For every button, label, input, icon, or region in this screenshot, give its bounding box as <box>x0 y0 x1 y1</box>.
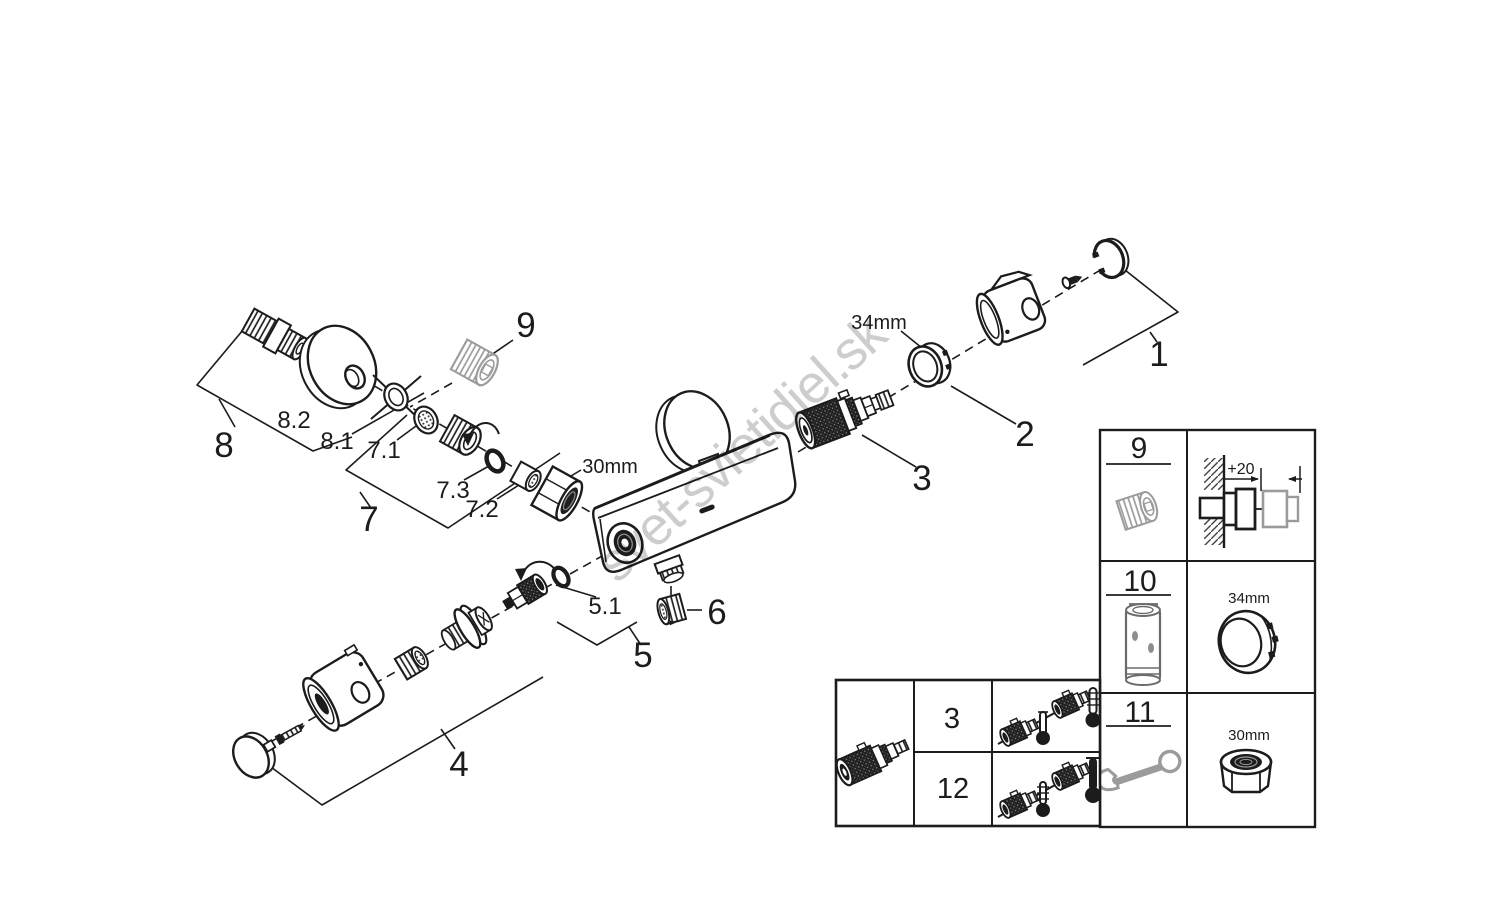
label-part-2: 2 <box>1015 415 1034 454</box>
part-8-1-seal-with-cross <box>371 375 421 420</box>
label-part-7: 7 <box>359 500 378 539</box>
service-table: 9 10 11 +20 <box>1095 430 1315 827</box>
part-7-3-threaded-connector <box>440 415 485 458</box>
table-ref-10: 10 <box>1123 565 1156 598</box>
label-part-6: 6 <box>707 593 726 632</box>
part-2-locking-ring-34mm <box>903 338 957 391</box>
part-5-1-shutoff-cartridge <box>499 572 550 615</box>
part-8-escutcheon <box>286 314 389 420</box>
part-4-volume-handle <box>295 644 388 735</box>
table-ref-11: 11 <box>1124 696 1155 729</box>
label-part-8: 8 <box>214 426 233 465</box>
label-part-5: 5 <box>633 636 652 675</box>
part-6-mousseur <box>655 594 686 628</box>
label-part-1: 1 <box>1149 335 1168 374</box>
part-7-1-filter-disc <box>410 402 443 437</box>
table-detail-34mm: 34mm <box>1228 590 1270 607</box>
label-part-9: 9 <box>516 306 535 345</box>
hex-union-nut-icon <box>1221 750 1271 792</box>
label-part-7-1: 7.1 <box>367 437 400 464</box>
bracket-part-5 <box>557 622 637 645</box>
leader-3 <box>862 435 916 467</box>
table-detail-30mm: 30mm <box>1228 727 1270 744</box>
thermometer-scale-icon-2 <box>1036 782 1050 817</box>
leader-2 <box>951 386 1016 424</box>
parts-diagram-canvas: 8 8.2 8.1 7.1 7.3 7.2 7 9 30mm 5.1 6 5 4… <box>0 0 1500 916</box>
part-5-flanged-bushing <box>433 597 499 661</box>
tick-label-8 <box>219 399 235 427</box>
variant-ref-12: 12 <box>937 773 969 805</box>
extension-sleeve-icon <box>1126 604 1160 685</box>
part-7-3-o-ring <box>483 448 507 474</box>
watermark-text: svet-svietidiel.sk <box>585 302 899 593</box>
label-part-7-2: 7.2 <box>465 496 498 523</box>
label-part-3: 3 <box>912 459 931 498</box>
cartridge-variant-table: 3 12 <box>831 680 1101 826</box>
part-9-extension-adapter <box>451 339 502 388</box>
label-part-4: 4 <box>449 745 468 784</box>
label-part-8-1: 8.1 <box>320 428 353 455</box>
label-part-8-2: 8.2 <box>277 407 310 434</box>
variant-ref-3: 3 <box>944 703 960 735</box>
part-1-temperature-handle <box>968 267 1048 348</box>
exploded-parts-diagram-page: 8 8.2 8.1 7.1 7.3 7.2 7 9 30mm 5.1 6 5 4… <box>0 0 1500 916</box>
part-4-threaded-insert <box>395 645 431 680</box>
label-part-5-1: 5.1 <box>588 593 621 620</box>
part-5-1-o-ring <box>550 565 571 589</box>
label-dim-30mm: 30mm <box>582 456 638 478</box>
table-detail-plus20: +20 <box>1227 461 1254 478</box>
table-ref-9: 9 <box>1131 432 1148 465</box>
part-4-cover-cap <box>226 725 285 784</box>
part-1-retaining-clip <box>1084 234 1133 283</box>
